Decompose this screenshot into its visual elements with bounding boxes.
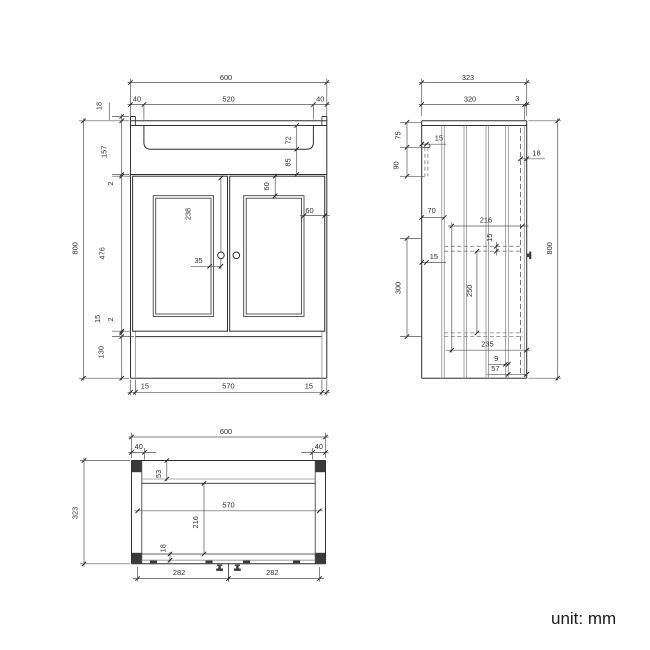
- technical-drawing-page: 6004052040800181572476152130728560602383…: [0, 0, 650, 650]
- hinge-mark: [150, 561, 157, 564]
- dim-label: 40: [135, 442, 143, 451]
- plan-dimensions: 60040403235357021618282282: [71, 427, 329, 582]
- plan-handle-knob: [235, 565, 240, 566]
- door-right-panel-inner: [246, 198, 301, 314]
- front-view: [131, 117, 327, 379]
- dim-label: 520: [222, 94, 234, 103]
- dim-label: 70: [427, 206, 435, 215]
- dim-label: 476: [97, 247, 106, 259]
- dim-label: 75: [393, 131, 402, 139]
- hinge-mark: [206, 561, 213, 564]
- plan-handle-knob: [218, 566, 220, 569]
- dim-label: 157: [99, 146, 108, 158]
- handle-knob-right: [233, 252, 240, 259]
- dim-label: 60: [305, 206, 313, 215]
- dim-label: 15: [435, 134, 443, 143]
- corner-post: [132, 461, 142, 472]
- dim-label: 57: [491, 364, 499, 373]
- corner-post: [316, 553, 326, 564]
- dim-label: 282: [266, 568, 278, 577]
- dim-label: 9: [494, 354, 498, 363]
- dim-label: 323: [71, 507, 80, 519]
- dim-label: 282: [173, 568, 185, 577]
- plan-handle-knob: [236, 566, 238, 569]
- dim-label: 570: [222, 382, 234, 391]
- dim-label: 570: [222, 501, 234, 510]
- hinge-mark: [293, 561, 300, 564]
- unit-label-group: unit: mm: [551, 609, 616, 628]
- plan-handle-knob: [234, 569, 241, 571]
- dim-label: 40: [315, 442, 323, 451]
- dim-label: 2: [106, 182, 115, 186]
- dim-label: 600: [220, 427, 232, 436]
- plan-handle-knob: [217, 565, 222, 566]
- door-right-panel: [244, 196, 304, 317]
- dim-label: 60: [262, 182, 271, 190]
- dim-label: 600: [220, 73, 232, 82]
- dim-label: 216: [480, 216, 492, 225]
- dim-label: 216: [191, 516, 200, 528]
- dim-label: 235: [481, 340, 493, 349]
- dim-label: 800: [545, 242, 554, 254]
- dim-label: 238: [184, 208, 193, 220]
- unit-label: unit: mm: [551, 609, 616, 628]
- dim-label: 18: [158, 544, 167, 552]
- dim-label: 18: [94, 102, 103, 110]
- dim-label: 18: [532, 148, 540, 157]
- dim-label: 300: [394, 282, 403, 294]
- plan-handle-knob: [216, 569, 223, 571]
- dim-label: 90: [391, 161, 400, 169]
- dim-label: 250: [465, 285, 474, 297]
- dim-label: 323: [462, 73, 474, 82]
- dim-label: 15: [485, 234, 494, 242]
- dim-label: 15: [93, 315, 102, 323]
- dim-label: 85: [283, 158, 292, 166]
- dim-label: 40: [316, 94, 324, 103]
- side-view: [422, 121, 532, 378]
- dim-label: 53: [154, 470, 163, 478]
- side-handle-knob: [527, 254, 529, 258]
- dim-label: 40: [133, 94, 141, 103]
- dim-label: 15: [141, 382, 149, 391]
- handle-knob-left: [218, 252, 225, 259]
- dim-label: 3: [515, 94, 519, 103]
- corner-post: [316, 461, 326, 472]
- vanity-unit-dimension-drawing: 6004052040800181572476152130728560602383…: [0, 0, 650, 650]
- dim-label: 2: [106, 317, 115, 321]
- dim-label: 130: [97, 346, 106, 358]
- dim-label: 320: [464, 94, 476, 103]
- dim-label: 15: [305, 382, 313, 391]
- corner-post: [132, 553, 142, 564]
- side-handle-knob: [529, 252, 531, 260]
- side-dimensions: 323320380075901518702161515300250235957: [391, 73, 561, 381]
- dim-label: 15: [430, 252, 438, 261]
- dim-label: 35: [194, 256, 202, 265]
- dim-label: 72: [283, 136, 292, 144]
- hinge-mark: [243, 561, 250, 564]
- dim-label: 800: [71, 242, 80, 254]
